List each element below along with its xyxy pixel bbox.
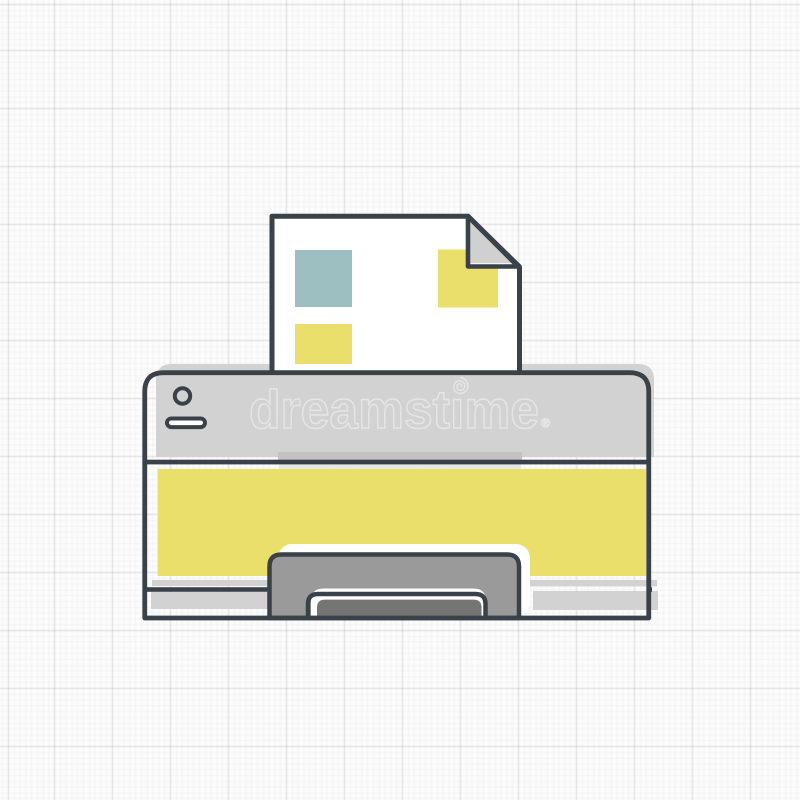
svg-text:®: ® bbox=[541, 416, 550, 430]
svg-text:dreamstıme: dreamstıme bbox=[249, 380, 539, 440]
